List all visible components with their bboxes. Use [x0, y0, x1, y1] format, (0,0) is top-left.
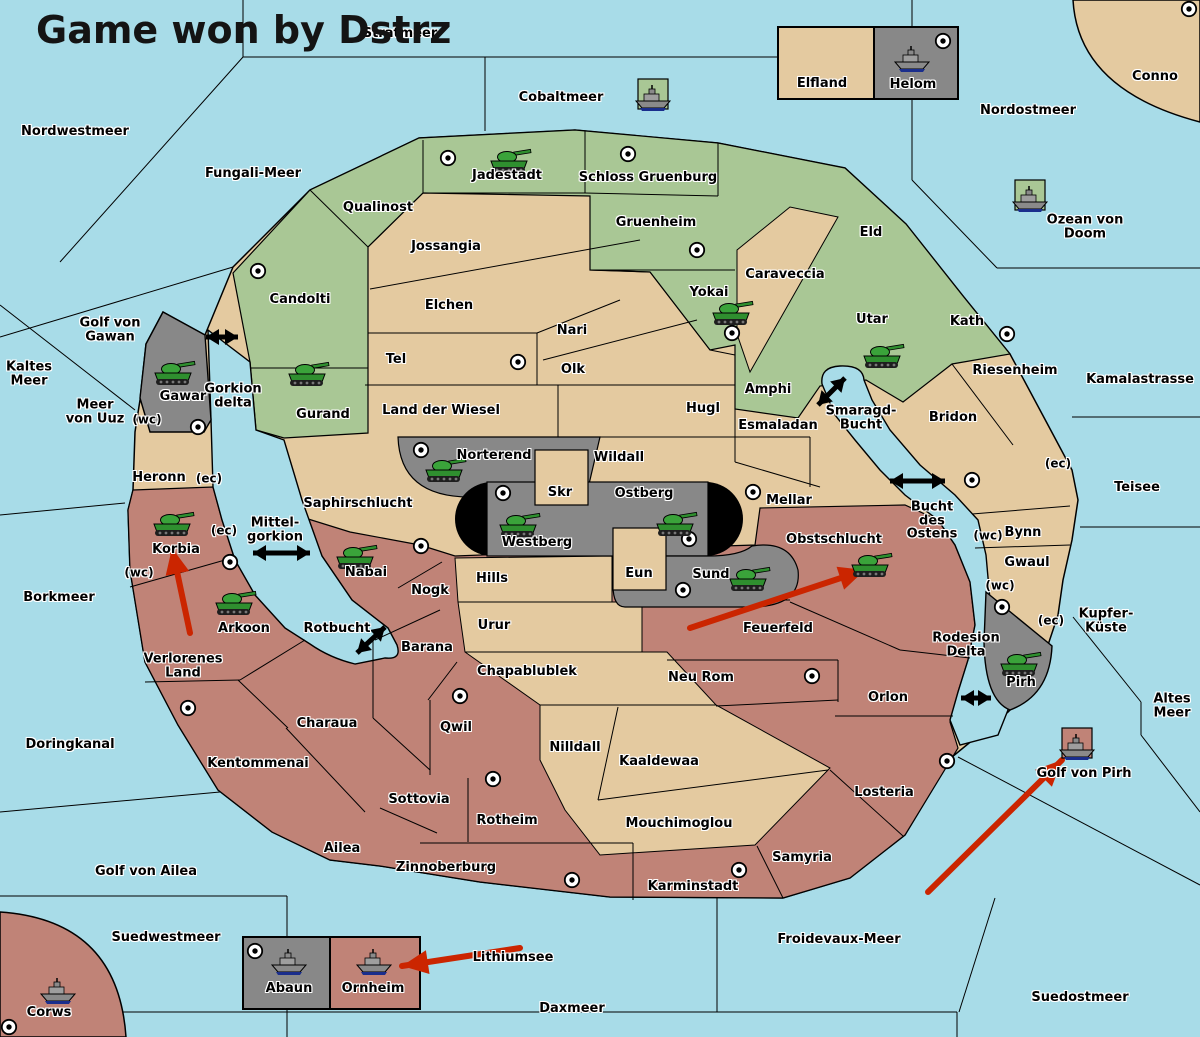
label-territory-qwil: Qwil [440, 721, 472, 735]
label-territory-barana: Barana [401, 641, 453, 655]
label-territory-corws: Corws [27, 1006, 72, 1020]
label-territory-samyria: Samyria [772, 851, 832, 865]
label-territory-jadestadt: Jadestadt [472, 169, 542, 183]
label-territory-kentommenai: Kentommenai [207, 757, 308, 771]
label-sea-kamalastrasse: Kamalastrasse [1086, 373, 1194, 387]
label-territory-esmaladan: Esmaladan [738, 419, 818, 433]
label-territory-nogk: Nogk [411, 584, 449, 598]
label-sea-doringkanal: Doringkanal [25, 738, 114, 752]
label-territory-kath: Kath [950, 315, 984, 329]
label-territory-bridon: Bridon [929, 411, 977, 425]
label-territory-karminstadt: Karminstadt [648, 880, 739, 894]
label-sea-lithiumsee: Lithiumsee [473, 951, 554, 965]
label-territory-ailea: Ailea [324, 842, 361, 856]
label-territory-gawar: Gawar [160, 390, 207, 404]
label-territory-hills: Hills [476, 572, 508, 586]
label-territory-bynn: Bynn [1005, 526, 1042, 540]
label-territory-mouchimoglou: Mouchimoglou [626, 817, 733, 831]
label-sea-nordwestmeer: Nordwestmeer [21, 125, 129, 139]
label-sea-kupfer-kueste: Kupfer- Küste [1079, 607, 1134, 634]
label-territory-schloss-gruenburg: Schloss Gruenburg [579, 171, 717, 185]
label-territory-olk: Olk [561, 363, 585, 377]
label-territory-eun: Eun [625, 567, 652, 581]
label-sea-golf-von-ailea: Golf von Ailea [95, 865, 197, 879]
label-territory-yokai: Yokai [689, 286, 728, 300]
label-territory-conno: Conno [1132, 70, 1178, 84]
label-territory-orlon: Orlon [868, 691, 908, 705]
label-territory-utar: Utar [856, 313, 888, 327]
label-territory-saphirschlucht: Saphirschlucht [303, 497, 412, 511]
label-sea-meer-von-uuz: Meer von Uuz [66, 398, 125, 425]
label-territory-gruenheim: Gruenheim [616, 216, 696, 230]
label-sea-golf-von-gawan: Golf von Gawan [80, 316, 141, 343]
label-territory-eld: Eld [860, 226, 883, 240]
label-sea-rotbucht: Rotbucht [304, 622, 371, 636]
label-sea-altes-meer: Altes Meer [1153, 692, 1190, 719]
label-sea-gorkion-delta: Gorkion delta [204, 382, 261, 409]
label-territory-jossangia: Jossangia [411, 240, 481, 254]
label-coast-marker-wc-gwaul: (wc) [985, 580, 1014, 593]
label-territory-candolti: Candolti [270, 293, 331, 307]
label-sea-froidevaux-meer: Froidevaux-Meer [777, 933, 900, 947]
label-territory-losteria: Losteria [854, 786, 914, 800]
label-sea-fungali-meer: Fungali-Meer [205, 167, 301, 181]
label-territory-kaaldewaa: Kaaldewaa [619, 755, 699, 769]
label-sea-bucht-des-ostens: Bucht des Ostens [907, 501, 958, 542]
label-territory-skr: Skr [548, 486, 572, 500]
label-territory-heronn: Heronn [132, 471, 186, 485]
label-sea-ozean-von-doom: Ozean von Doom [1028, 213, 1143, 240]
map-title: Game won by Dstrz [36, 8, 451, 52]
terrain-layer [0, 0, 1200, 1037]
label-coast-marker-ec-bridon: (ec) [1045, 458, 1071, 471]
label-territory-neu-rom: Neu Rom [668, 671, 734, 685]
label-sea-mittel-gorkion: Mittel- gorkion [247, 516, 303, 543]
label-coast-marker-ec-korbia: (ec) [211, 525, 237, 538]
label-sea-smaragd-bucht: Smaragd- Bucht [826, 404, 897, 431]
label-territory-zinnoberburg: Zinnoberburg [396, 861, 496, 875]
label-sea-kaltes-meer: Kaltes Meer [6, 360, 52, 387]
label-sea-cobaltmeer: Cobaltmeer [519, 91, 604, 105]
label-territory-feuerfeld: Feuerfeld [743, 622, 813, 636]
label-territory-urur: Urur [478, 619, 511, 633]
label-territory-gwaul: Gwaul [1004, 556, 1049, 570]
label-territory-amphi: Amphi [745, 383, 792, 397]
label-sea-suedwestmeer: Suedwestmeer [111, 931, 220, 945]
label-coast-marker-ec-heronn: (ec) [196, 473, 222, 486]
label-territory-sund: Sund [692, 568, 729, 582]
label-sea-borkmeer: Borkmeer [23, 591, 95, 605]
label-sea-teisee: Teisee [1114, 481, 1160, 495]
label-territory-caraveccia: Caraveccia [745, 268, 824, 282]
label-territory-charaua: Charaua [297, 717, 358, 731]
label-territory-nari: Nari [557, 324, 588, 338]
label-sea-suedostmeer: Suedostmeer [1031, 991, 1128, 1005]
label-sea-rodesion-delta: Rodesion Delta [932, 631, 999, 658]
label-territory-arkoon: Arkoon [218, 622, 270, 636]
label-territory-ostberg: Ostberg [615, 487, 674, 501]
label-territory-qualinost: Qualinost [343, 201, 413, 215]
label-territory-sottovia: Sottovia [388, 793, 449, 807]
label-territory-abaun: Abaun [266, 982, 313, 996]
label-territory-korbia: Korbia [152, 543, 200, 557]
label-coast-marker-wc-korbia: (wc) [124, 567, 153, 580]
label-territory-pirh: Pirh [1006, 676, 1036, 690]
label-territory-hugl: Hugl [686, 402, 720, 416]
label-territory-ornheim: Ornheim [342, 982, 405, 996]
label-territory-elfland: Elfland [797, 77, 847, 91]
label-territory-norterend: Norterend [456, 449, 531, 463]
label-territory-nilldall: Nilldall [549, 741, 600, 755]
label-sea-daxmeer: Daxmeer [539, 1002, 605, 1016]
label-coast-marker-wc-bynn: (wc) [973, 530, 1002, 543]
label-territory-land-der-wiesel: Land der Wiesel [382, 404, 500, 418]
territory-ornheim-shape[interactable] [330, 937, 420, 1009]
label-territory-riesenheim: Riesenheim [972, 364, 1057, 378]
label-territory-tel: Tel [386, 353, 406, 367]
label-territory-helom: Helom [890, 78, 937, 92]
label-territory-westberg: Westberg [502, 536, 572, 550]
label-territory-chapablublek: Chapablublek [477, 665, 577, 679]
game-map: NordwestmeerStratmeerCobaltmeerNordostme… [0, 0, 1200, 1037]
label-coast-marker-wc-uuz: (wc) [132, 414, 161, 427]
label-territory-nabai: Nabai [345, 566, 387, 580]
label-sea-golf-von-pirh: Golf von Pirh [1036, 767, 1131, 781]
label-territory-gurand: Gurand [296, 408, 350, 422]
territory-abaun-shape[interactable] [243, 937, 330, 1009]
label-territory-mellar: Mellar [766, 494, 812, 508]
label-territory-wildall: Wildall [594, 451, 644, 465]
label-territory-verlorenes-land: Verlorenes Land [143, 652, 222, 679]
label-territory-obstschlucht: Obstschlucht [786, 533, 882, 547]
label-sea-nordostmeer: Nordostmeer [980, 104, 1076, 118]
label-territory-rotheim: Rotheim [476, 814, 537, 828]
label-coast-marker-ec-gwaul: (ec) [1038, 615, 1064, 628]
label-territory-elchen: Elchen [425, 299, 473, 313]
